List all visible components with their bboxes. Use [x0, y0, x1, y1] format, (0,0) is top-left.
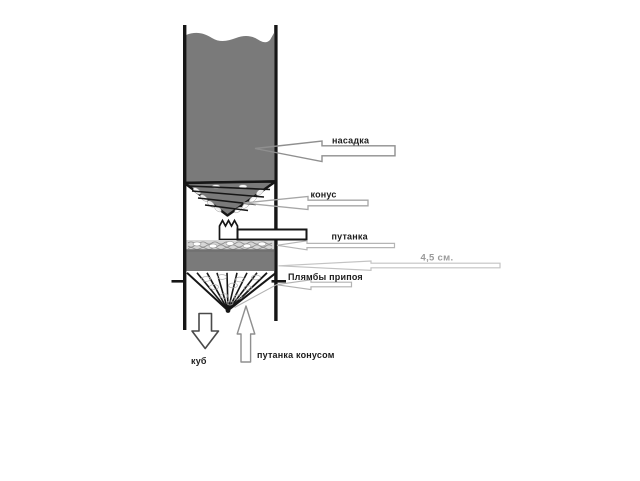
label-putanka: путанка	[332, 232, 369, 242]
label-putanka-konusom: путанка конусом	[257, 350, 335, 360]
tube-right-wall	[274, 25, 277, 321]
packing-fill	[186, 33, 274, 183]
gray-spacer-band	[186, 251, 274, 272]
right-support-tick	[272, 280, 287, 283]
background	[0, 0, 640, 481]
spring-cup	[220, 221, 238, 240]
label-plyamby-pripoya: Плямбы припоя	[288, 272, 363, 282]
solder-apex-blob	[226, 308, 231, 313]
label-konus: конус	[311, 190, 337, 200]
label-kub: куб	[191, 356, 207, 366]
putanka-band	[186, 240, 274, 250]
cup-bracket	[238, 230, 307, 240]
diagram-canvas: насадка конус путанка 4,5 см. Плямбы при…	[0, 0, 640, 481]
tube-left-wall	[183, 25, 186, 330]
column-diagram: насадка конус путанка 4,5 см. Плямбы при…	[0, 0, 640, 481]
label-nasadka: насадка	[332, 136, 370, 146]
label-dimension: 4,5 см.	[421, 252, 454, 263]
